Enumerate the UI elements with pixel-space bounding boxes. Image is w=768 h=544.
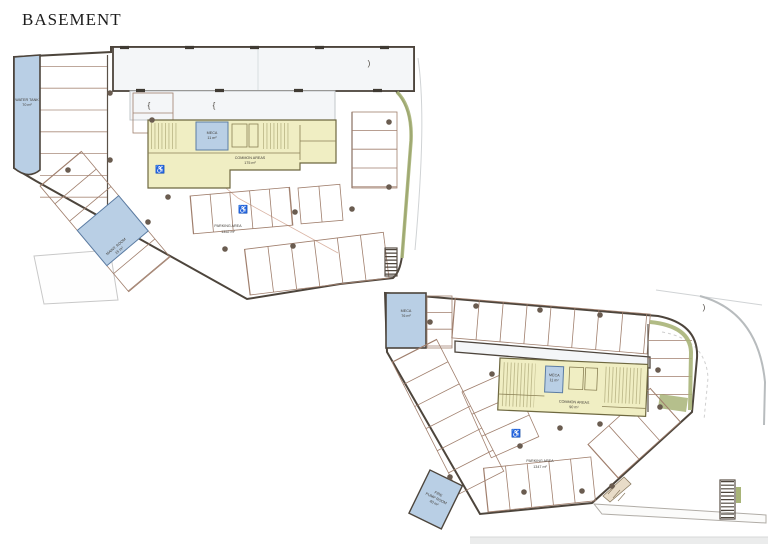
landscape-sliver — [736, 487, 741, 503]
common-areas-core: MECA 11 m² COMMON AREAS 90 m² — [498, 358, 648, 416]
parking-area-value: 1352 m² — [221, 230, 235, 234]
ramp-strip-lower — [130, 91, 335, 120]
meca-room-area: 76 m² — [401, 314, 411, 318]
basement-plan-2: MECA 76 m² — [385, 290, 768, 544]
meca-area: 11 m² — [549, 378, 559, 382]
parking-stalls-diagonal — [392, 339, 504, 494]
section-mark-icon: { — [213, 101, 216, 110]
basement-plan-1: MAINT. ROOM 15 m² WATER TANK 70 m² MECA … — [14, 47, 422, 304]
parking-area-label: PARKING AREA — [214, 224, 242, 228]
parking-stalls-middle-2 — [298, 184, 343, 224]
water-tank-label: WATER TANK — [15, 98, 39, 102]
cropped-sheet-band — [470, 537, 768, 544]
section-mark-icon: { — [148, 101, 151, 110]
water-tank-room — [14, 55, 40, 175]
water-tank-area: 70 m² — [22, 103, 32, 107]
site-boundary-line — [415, 58, 422, 250]
parking-area-value: 1347 m² — [533, 465, 547, 469]
common-areas-area: 90 m² — [569, 405, 579, 409]
parking-stalls-left — [74, 55, 108, 213]
common-areas-core: MECA 11 m² COMMON AREAS 175 m² — [148, 120, 336, 188]
meca-label: MECA — [207, 131, 218, 135]
meca-room-label: MECA — [401, 309, 412, 313]
accessible-parking-icon: ♿ — [155, 164, 165, 174]
basement-plans-drawing: MAINT. ROOM 15 m² WATER TANK 70 m² MECA … — [0, 0, 768, 544]
meca-room-large — [386, 293, 426, 348]
section-mark-icon: ) — [703, 303, 706, 312]
common-areas-label: COMMON AREAS — [235, 156, 266, 160]
drawing-sheet: BASEMENT — [0, 0, 768, 544]
accessible-parking-icon: ♿ — [511, 428, 521, 438]
meca-area: 11 m² — [207, 136, 217, 140]
ramp-strip-upper — [113, 47, 414, 91]
landscape-strip — [397, 92, 411, 258]
meca-label: MECA — [549, 373, 560, 377]
accessible-parking-icon: ♿ — [238, 204, 248, 214]
road-curb-line — [700, 296, 765, 425]
section-mark-icon: ) — [368, 59, 371, 68]
landscape-patch — [658, 394, 688, 412]
parking-area-label: PARKING AREA — [526, 459, 554, 463]
fire-pump-room: FIRE PUMP ROOM 40 m² — [409, 470, 462, 529]
common-areas-area: 175 m² — [244, 161, 256, 165]
